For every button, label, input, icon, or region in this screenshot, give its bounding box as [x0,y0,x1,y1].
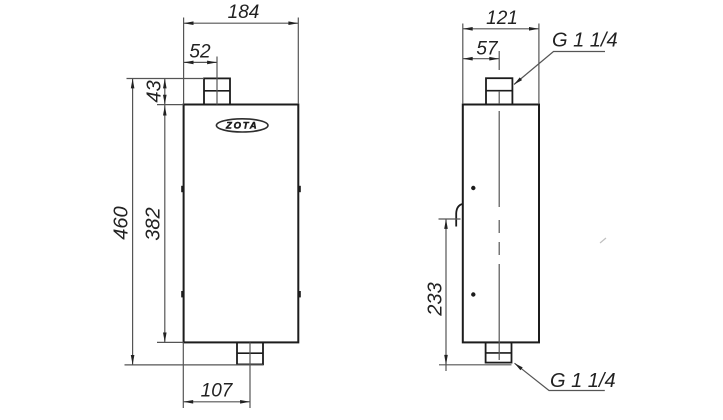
svg-text:107: 107 [201,381,234,402]
svg-text:43: 43 [143,80,165,102]
svg-text:184: 184 [228,2,260,23]
svg-text:ZOTA: ZOTA [225,121,258,132]
svg-text:57: 57 [476,39,499,60]
svg-text:121: 121 [486,8,518,29]
svg-text:460: 460 [111,206,133,239]
svg-text:233: 233 [424,282,446,316]
svg-text:G 1 1/4: G 1 1/4 [552,30,618,52]
svg-text:G 1 1/4: G 1 1/4 [550,370,616,392]
svg-text:52: 52 [189,42,211,63]
svg-text:382: 382 [143,207,165,240]
